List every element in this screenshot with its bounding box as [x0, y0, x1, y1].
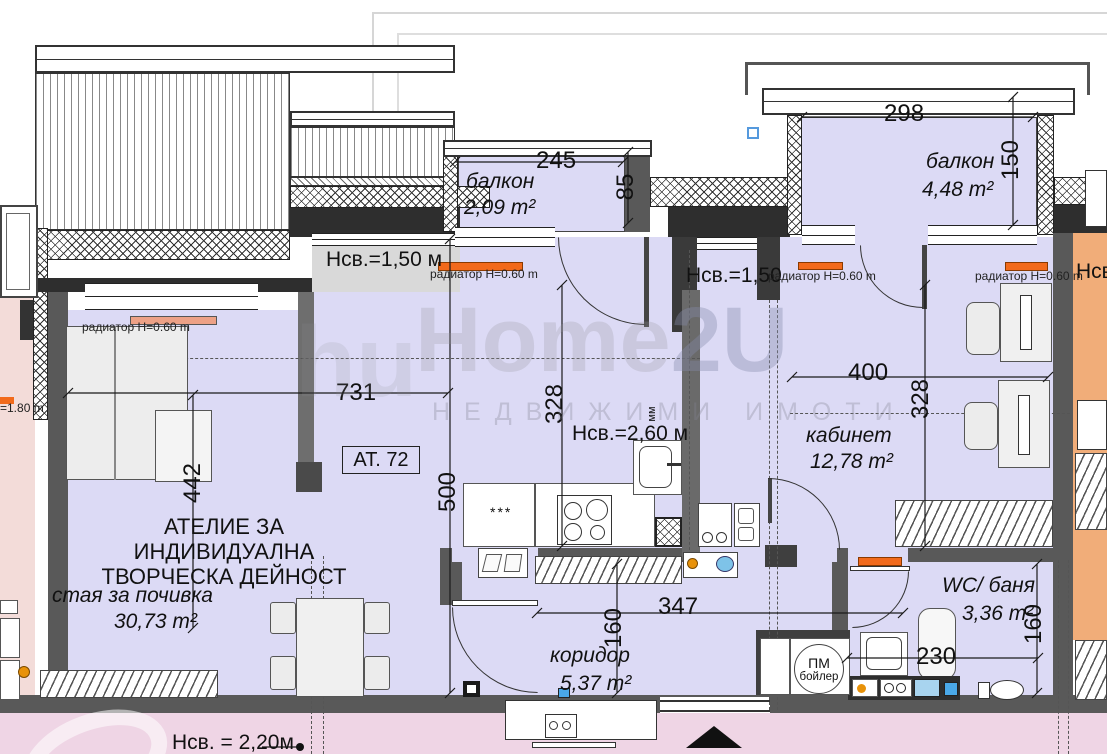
dim-442: 442: [181, 443, 205, 523]
dim-500: 500: [436, 452, 460, 532]
unit-label: АТ. 72: [353, 449, 408, 472]
balcony1-area: 2,09 m²: [464, 196, 535, 220]
dim-245: 245: [536, 147, 576, 175]
balcony1-name: балкон: [466, 170, 534, 194]
dim-160-wc: 160: [1022, 584, 1046, 664]
radiator-label: радиатор H=0.60 m: [430, 267, 538, 281]
dim-328-office: 328: [909, 359, 933, 439]
office-name: кабинет: [806, 424, 892, 448]
atelier-area: 30,73 m²: [114, 610, 197, 634]
height-label-right: Нсв.: [1076, 260, 1107, 284]
balcony2-area: 4,48 m²: [922, 178, 993, 202]
dim-347: 347: [658, 593, 698, 621]
unit-label-box: АТ. 72: [342, 446, 420, 474]
atelier-name: стая за почивка: [52, 584, 213, 608]
dim-328-mid: 328: [543, 364, 567, 444]
radiator-label-partial: =1.80 m: [0, 401, 44, 415]
atelier-title: АТЕЛИЕ ЗА ИНДИВИДУАЛНА ТВОРЧЕСКА ДЕЙНОСТ: [78, 514, 370, 589]
height-label-260: Нсв.=2,60 м: [572, 422, 688, 446]
dim-400: 400: [848, 359, 888, 387]
height-label-150: Нсв.=1,50 м: [326, 248, 442, 272]
dim-150: 150: [999, 120, 1023, 200]
drawers-label: ***: [490, 504, 512, 520]
dim-298: 298: [884, 100, 924, 128]
atelier-title-line1: АТЕЛИЕ ЗА ИНДИВИДУАЛНА: [78, 514, 370, 564]
balcony2-name: балкон: [926, 150, 994, 174]
dim-160-corridor: 160: [602, 588, 626, 668]
sink-label: мм: [640, 374, 664, 454]
dim-85: 85: [614, 147, 638, 227]
radiator-label: радиатор H=0.60 m: [768, 269, 876, 283]
wc-name: WC/ баня: [942, 574, 1035, 598]
floor-plan: ПМ бойлер: [0, 0, 1107, 754]
dim-230: 230: [916, 643, 956, 671]
corridor-area: 5,37 m²: [560, 672, 631, 696]
radiator-label: радиатор H=0.60 m: [82, 320, 190, 334]
office-area: 12,78 m²: [810, 450, 893, 474]
radiator-label: радиатор H=0.60 m: [975, 269, 1083, 283]
dim-731: 731: [336, 379, 376, 407]
height-label-220: Нсв. = 2,20м: [172, 731, 294, 754]
